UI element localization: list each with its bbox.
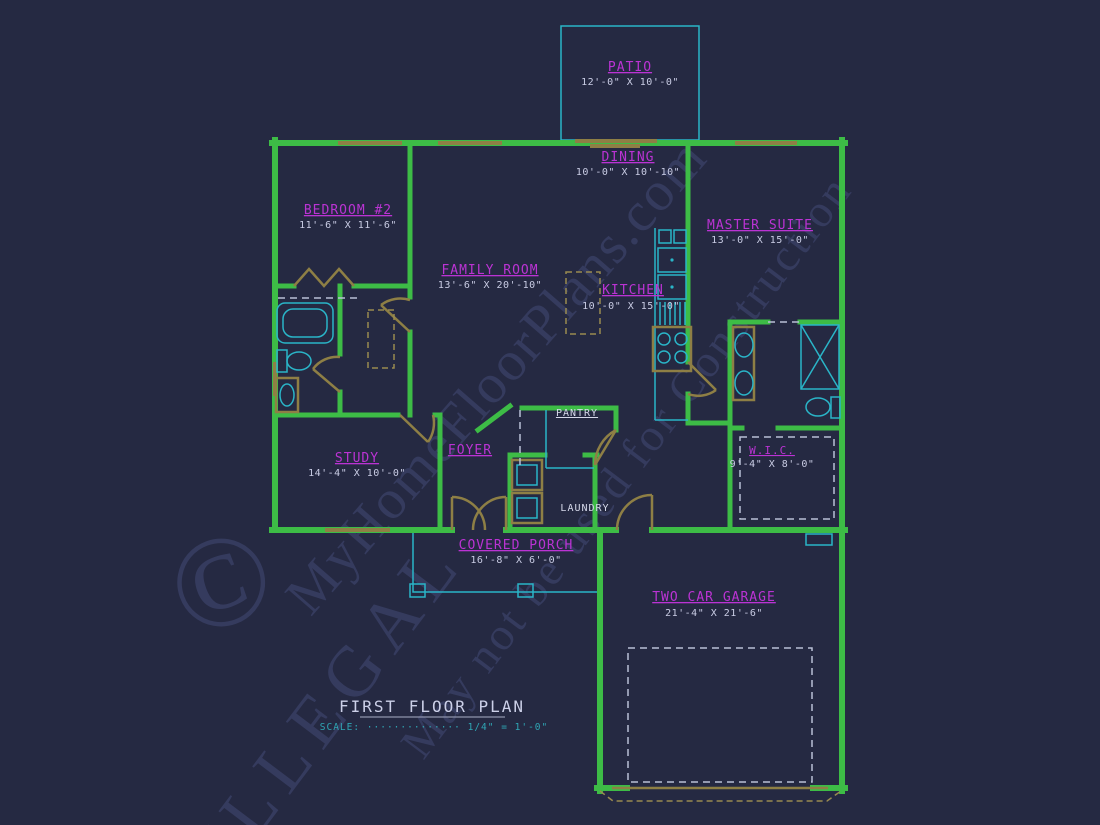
floor-plan-canvas: © MyHomeFloorPlans.com ILLEGAL May not b…: [0, 0, 1100, 825]
label-family-room: FAMILY ROOM: [441, 263, 538, 278]
garage-door-outline: [628, 648, 812, 782]
label-kitchen: KITCHEN: [602, 283, 664, 298]
garage-step: [806, 534, 832, 545]
dim-master-suite: 13'-0" X 15'-0": [711, 235, 809, 246]
label-master-suite: MASTER SUITE: [707, 218, 813, 233]
garage-details: [600, 534, 841, 801]
label-bedroom2: BEDROOM #2: [304, 203, 392, 218]
plan-title: FIRST FLOOR PLAN: [339, 697, 525, 716]
label-laundry: LAUNDRY: [560, 503, 609, 514]
label-pantry: PANTRY: [556, 408, 598, 419]
dim-patio: 12'-0" X 10'-0": [581, 77, 679, 88]
label-garage: TWO CAR GARAGE: [652, 590, 776, 605]
dim-wic: 9'-4" X 8'-0": [730, 459, 815, 470]
label-dining: DINING: [602, 150, 655, 165]
label-patio: PATIO: [608, 60, 652, 75]
dim-bedroom2: 11'-6" X 11'-6": [299, 220, 397, 231]
kitchen-sink: [674, 230, 686, 243]
toilet: [806, 398, 830, 416]
dim-garage: 21'-4" X 21'-6": [665, 608, 763, 619]
sink: [735, 371, 753, 395]
label-wic: W.I.C.: [749, 444, 795, 457]
title-block: FIRST FLOOR PLAN SCALE: ·············· 1…: [320, 697, 548, 733]
master-bath-fixtures: [733, 322, 840, 519]
dim-kitchen: 10'-0" X 15'-0": [582, 301, 680, 312]
toilet-tank: [831, 397, 840, 418]
media-niche: [368, 310, 394, 368]
toilet-tank: [277, 350, 287, 372]
garage-apron: [600, 791, 841, 801]
plan-scale: SCALE: ·············· 1/4" = 1'-0": [320, 722, 548, 733]
floor-plan-page: © MyHomeFloorPlans.com ILLEGAL May not b…: [0, 0, 1100, 825]
label-foyer: FOYER: [448, 443, 492, 458]
sink: [280, 384, 294, 406]
dim-covered-porch: 16'-8" X 6'-0": [470, 555, 561, 566]
dim-dining: 10'-0" X 10'-10": [576, 167, 680, 178]
label-study: STUDY: [335, 451, 379, 466]
label-covered-porch: COVERED PORCH: [459, 538, 574, 553]
bifold-closet-door: [294, 269, 354, 286]
watermark-copyright: ©: [150, 498, 292, 667]
toilet: [287, 352, 311, 370]
dim-study: 14'-4" X 10'-0": [308, 468, 406, 479]
dim-family-room: 13'-6" X 20'-10": [438, 280, 542, 291]
